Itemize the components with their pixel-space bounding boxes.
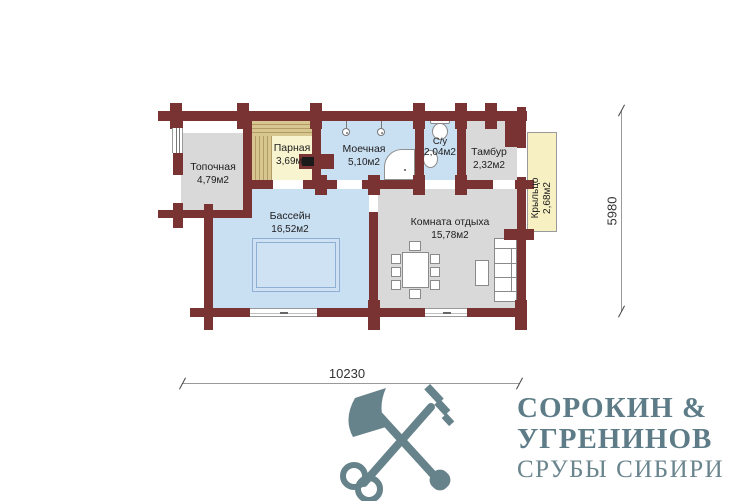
pool-basin-inner xyxy=(256,242,336,288)
side-table xyxy=(475,260,489,286)
log-end xyxy=(170,103,182,129)
dining-table xyxy=(402,252,429,288)
wall-segment xyxy=(173,153,183,175)
room-label-pool: Бассейн 16,52м2 xyxy=(270,210,311,236)
chair xyxy=(409,241,421,251)
room-label-steam: Парная 3,69м2 xyxy=(274,142,311,168)
room-label-furnace: Топочная 4,79м2 xyxy=(190,161,236,187)
log-end xyxy=(515,300,527,330)
log-end xyxy=(485,103,497,129)
floor-plan-page: Топочная 4,79м2 Парная 3,69м2 Моечная 5,… xyxy=(0,0,753,502)
chair xyxy=(430,254,440,264)
log-end xyxy=(413,103,425,129)
dimension-width-value: 10230 xyxy=(329,366,365,381)
room-label-washroom: Моечная 5,10м2 xyxy=(343,143,386,169)
wall-corner-block xyxy=(505,121,517,147)
room-name: Крыльцо xyxy=(530,178,542,219)
chair xyxy=(430,267,440,277)
log-end xyxy=(455,103,467,129)
room-name: Бассейн xyxy=(270,210,311,223)
pool-basin xyxy=(252,238,340,292)
chair xyxy=(391,254,401,264)
chair xyxy=(430,280,440,290)
wall-segment xyxy=(158,210,248,218)
log-end xyxy=(455,175,467,195)
wall-segment xyxy=(173,203,183,228)
dimension-line-height xyxy=(621,110,622,312)
room-area: 4,79м2 xyxy=(190,174,236,187)
wall-segment xyxy=(517,107,526,148)
log-end xyxy=(310,103,322,129)
room-furnace-floor xyxy=(181,121,243,133)
room-area: 2,04м2 xyxy=(424,147,456,158)
log-end xyxy=(413,175,425,195)
logo-axe-key-icon xyxy=(340,384,460,501)
logo-text-line1: СОРОКИН & xyxy=(517,392,707,425)
chair xyxy=(409,289,421,299)
room-name: Топочная xyxy=(190,161,236,174)
room-label-lounge: Комната отдыха 15,78м2 xyxy=(411,216,490,242)
dimension-line-width xyxy=(182,383,519,384)
room-label-porch: Крыльцо 2,68м2 xyxy=(530,178,554,219)
sauna-bench-left xyxy=(252,136,272,180)
chair xyxy=(391,267,401,277)
room-area: 3,69м2 xyxy=(274,155,311,168)
dimension-height-value: 5980 xyxy=(605,197,620,226)
wall-segment xyxy=(170,111,527,121)
room-label-wc: С/у 2,04м2 xyxy=(424,136,456,158)
log-end xyxy=(237,103,249,129)
room-name: Моечная xyxy=(343,143,386,156)
room-area: 2,68м2 xyxy=(542,178,554,219)
window xyxy=(425,308,467,317)
logo-text-line3: СРУБЫ СИБИРИ xyxy=(517,456,724,484)
room-name: Тамбур xyxy=(471,146,507,159)
room-name: Комната отдыха xyxy=(411,216,490,229)
room-label-vestibule: Тамбур 2,32м2 xyxy=(471,146,507,172)
wall-segment xyxy=(204,204,213,330)
room-area: 16,52м2 xyxy=(270,223,311,236)
room-name: Парная xyxy=(274,142,311,155)
sauna-bench-top xyxy=(252,121,312,136)
room-area: 2,32м2 xyxy=(471,159,507,172)
log-end xyxy=(190,308,204,317)
room-area: 15,78м2 xyxy=(411,229,490,242)
shower-head-icon xyxy=(377,128,385,136)
room-name: С/у xyxy=(424,136,456,147)
window xyxy=(172,128,183,153)
shower-cabin xyxy=(384,149,415,180)
window xyxy=(250,308,317,317)
sofa xyxy=(494,238,517,302)
log-end xyxy=(315,175,327,195)
log-end xyxy=(158,111,170,121)
logo-text-line2: УГРЕНИНОВ xyxy=(517,423,712,456)
room-area: 5,10м2 xyxy=(343,156,386,169)
shower-head-icon xyxy=(342,128,350,136)
chair xyxy=(391,280,401,290)
log-end xyxy=(368,300,380,330)
log-end xyxy=(368,175,380,195)
